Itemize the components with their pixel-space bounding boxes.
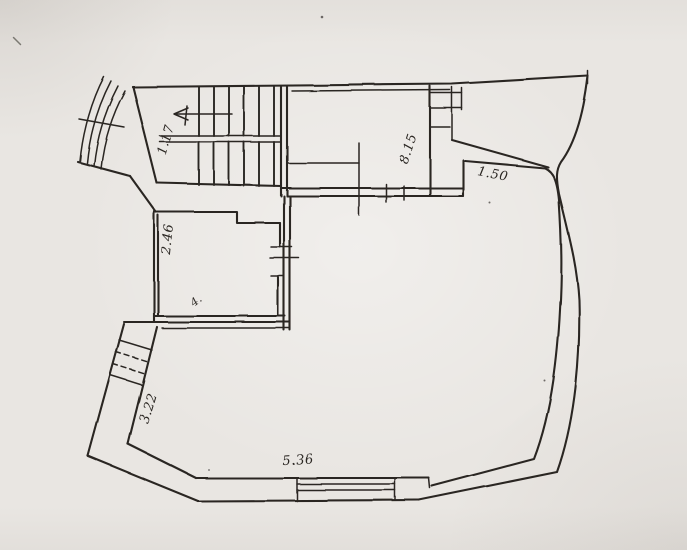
upper-room [281,86,463,215]
bevel-corner-inner [128,444,196,478]
curved-wall-outer [419,76,588,500]
central-wall [284,196,290,330]
speck-mark [13,37,20,44]
top-wall [133,71,588,91]
scanned-floor-plan-page: 1.17 8.15 1.50 2.46 4. 3.22 5.36 [0,0,687,550]
stair-treads-upper [199,86,274,136]
speck-dot [321,16,324,19]
pier-vertical [452,87,462,140]
speck-dot [544,380,546,382]
dimension-label-side-room-note: 4. [187,292,205,310]
dimension-label-bottom-wall: 5.36 [282,452,314,469]
dimension-labels: 1.17 8.15 1.50 2.46 4. 3.22 5.36 [137,123,509,469]
top-wall-inner [292,90,450,91]
fan-terrace [452,140,548,167]
wall-opening-tick [386,184,404,202]
fan-bottom-diagonal [452,140,548,167]
curved-right-wall [419,76,588,500]
curved-step-line [101,91,125,169]
curved-steps-bottom [78,162,130,176]
door-jamb [110,340,152,385]
speck-dot [489,202,491,204]
dimension-label-stairs: 1.17 [155,123,178,157]
left-outer-wall-diagonal [130,176,156,212]
staircase-landing [160,136,281,142]
speck-dot [208,469,210,471]
entrance-door [88,324,157,456]
side-room-top-wall [154,212,280,223]
bevel-corner-outer [88,456,198,501]
floor-plan-drawing: 1.17 8.15 1.50 2.46 4. 3.22 5.36 [0,0,687,550]
staircase [133,86,287,196]
entrance-wall-outer [88,324,124,456]
side-room-left-wall [154,211,158,322]
dimension-label-upper-room: 8.15 [397,132,421,166]
curved-exterior-steps [78,77,156,212]
side-room-right-wall [278,223,280,316]
door-threshold-dashed [113,352,148,374]
staircase-right-wall [281,86,287,196]
upper-room-bottom-wall [281,188,463,196]
curved-wall-inner [432,161,561,486]
dimension-label-curved-wall: 1.50 [476,164,509,185]
staircase-left-edge [133,87,157,183]
pier-rungs [430,93,462,127]
side-room [124,196,299,330]
bottom-window-glazing [297,484,395,490]
bottom-wall-notch [429,478,430,488]
staircase-bottom-edge [157,183,281,186]
dimension-label-side-room: 2.46 [159,223,177,256]
bottom-wall-outer [198,500,419,501]
curved-step-line [80,77,104,161]
top-wall-outer [133,76,588,87]
side-room-door-jambs [271,247,292,276]
bottom-wall [88,444,430,501]
window-pier [430,87,462,140]
stair-treads-lower [199,142,274,186]
side-room-bottom-wall [124,316,290,322]
